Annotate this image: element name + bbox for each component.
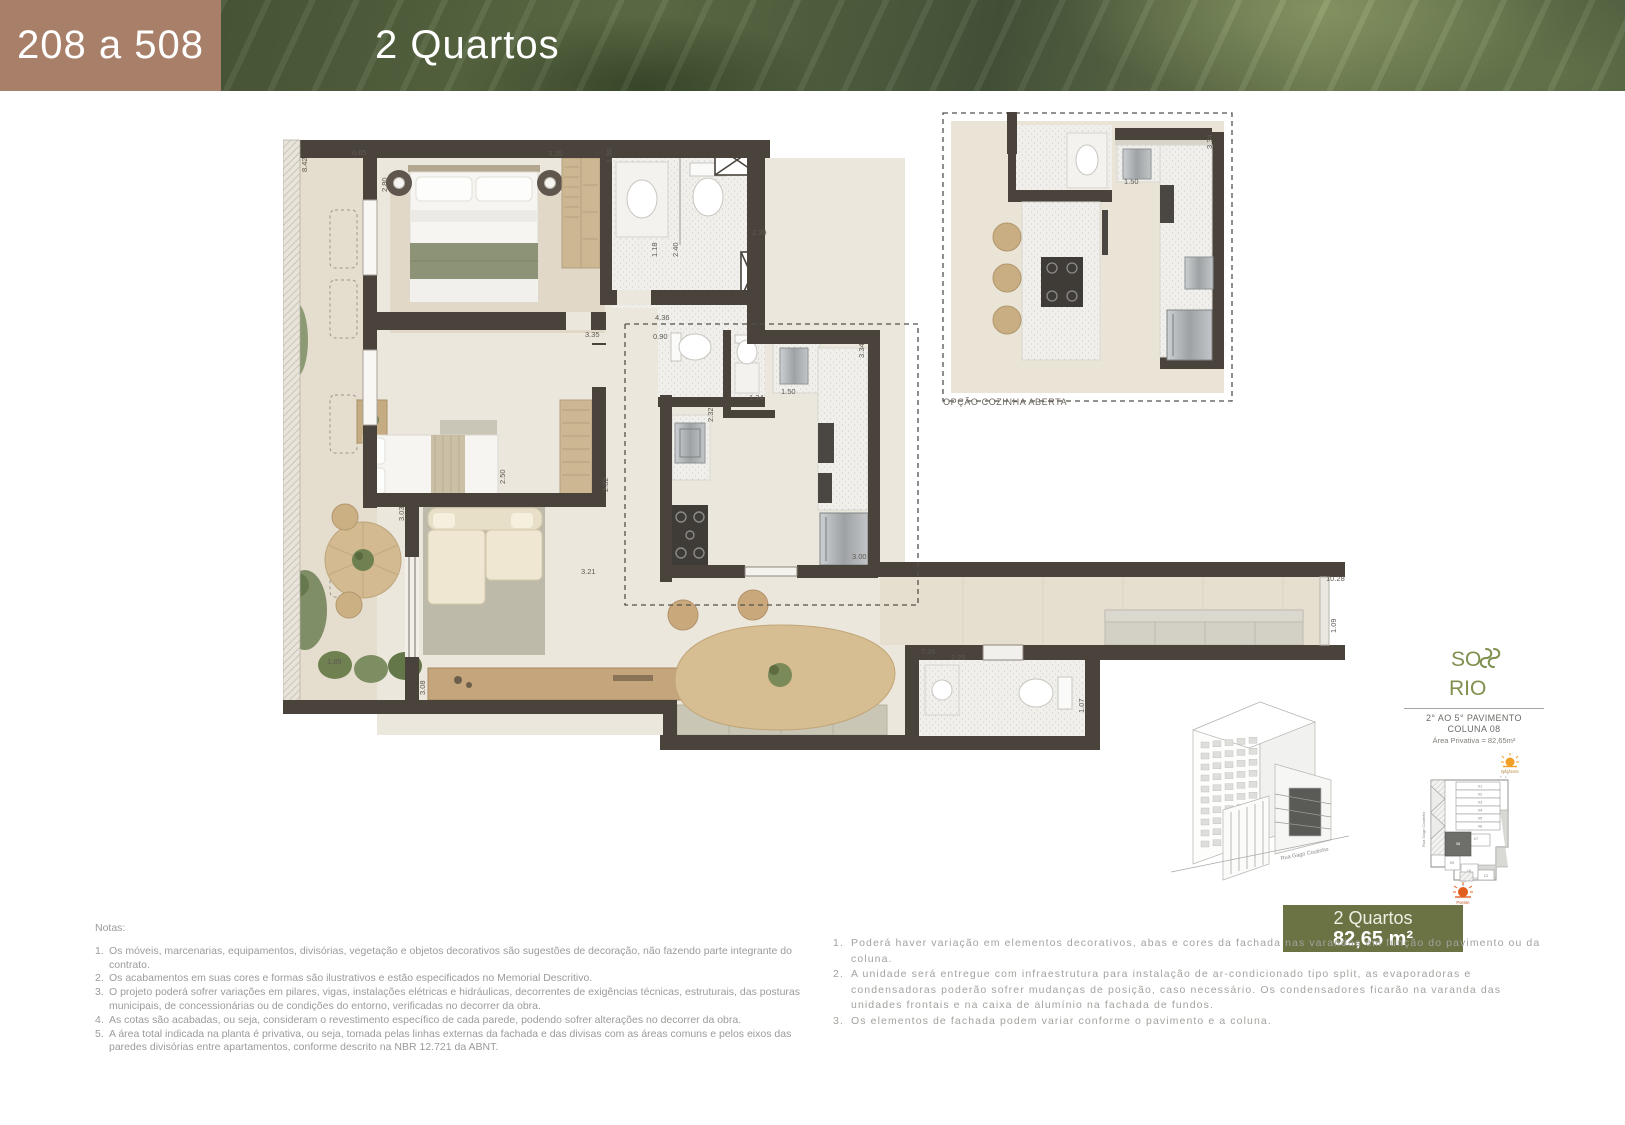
bottom-wall-dining bbox=[660, 735, 905, 750]
wardrobe bbox=[562, 158, 600, 268]
dimension-label: 2.82 bbox=[601, 477, 610, 492]
stool bbox=[993, 306, 1021, 334]
note-item: 1.Os móveis, marcenarias, equipamentos, … bbox=[95, 945, 801, 973]
notes-left: Notas: 1.Os móveis, marcenarias, equipam… bbox=[95, 922, 801, 1055]
notes-left-list: 1.Os móveis, marcenarias, equipamentos, … bbox=[95, 945, 801, 1055]
unit-label: 01 bbox=[1478, 784, 1483, 789]
door-opening bbox=[617, 290, 651, 305]
dimension-label: 7.26 bbox=[921, 647, 936, 656]
toilet-bowl bbox=[693, 178, 723, 216]
leaf-banner: 2 Quartos bbox=[221, 0, 1625, 91]
dimension-label: 3.34 bbox=[1205, 134, 1214, 149]
unit-label: 03 bbox=[1478, 800, 1483, 805]
building-illustration: Rua Gago Coutinho bbox=[1163, 668, 1358, 888]
dimension-label: 0.65 bbox=[352, 148, 367, 157]
inset-appliance bbox=[1160, 185, 1174, 223]
note-item: 2.Os acabamentos em suas cores e formas … bbox=[95, 972, 801, 986]
throw-blanket bbox=[431, 435, 465, 497]
dimension-label: 1.07 bbox=[1077, 698, 1086, 713]
appliance bbox=[818, 473, 832, 503]
sun-set-icon bbox=[1453, 882, 1473, 897]
wardrobe bbox=[560, 400, 592, 495]
historic-facade bbox=[1223, 796, 1269, 880]
dimension-label: 10.28 bbox=[1326, 574, 1345, 583]
dimension-label: 1.50 bbox=[1124, 177, 1139, 186]
solrio-logo: SO RIO bbox=[1443, 645, 1505, 703]
dimension-label: 3.21 bbox=[581, 567, 596, 576]
service-tank bbox=[780, 348, 808, 384]
sink-basin bbox=[627, 180, 657, 218]
toilet-bowl bbox=[1019, 679, 1053, 707]
brand-block: SO RIO 2° AO 5° PAVIMENTO COLUNA 08 Área… bbox=[1398, 645, 1550, 745]
keyplan: 0102030405060708091012 Nascente Poente R… bbox=[1416, 752, 1576, 907]
svg-text:SO: SO bbox=[1451, 648, 1481, 671]
private-area-label: Área Privativa = 82,65m² bbox=[1398, 736, 1550, 745]
divider bbox=[1404, 708, 1544, 709]
sliding-door bbox=[405, 557, 419, 657]
inset-fridge bbox=[1167, 310, 1212, 360]
page-header: 208 a 508 2 Quartos bbox=[0, 0, 1625, 91]
stool bbox=[993, 223, 1021, 251]
unit-label: 10 bbox=[1467, 868, 1472, 873]
pillow bbox=[476, 177, 532, 201]
cushion bbox=[511, 513, 533, 528]
column-label: COLUNA 08 bbox=[1398, 724, 1550, 734]
wing-recess bbox=[1289, 788, 1321, 836]
sun-rise-label: Nascente bbox=[1501, 769, 1519, 774]
unit-label: 02 bbox=[1478, 792, 1483, 797]
toilet-tank bbox=[1058, 677, 1072, 709]
dimension-label: 3.00 bbox=[852, 552, 867, 561]
dimension-label: 2.80 bbox=[380, 177, 389, 192]
notes-right-list: 1.Poderá haver variação em elementos dec… bbox=[833, 936, 1545, 1029]
sink-basin bbox=[932, 680, 952, 700]
dimension-label: 1.18 bbox=[650, 242, 659, 257]
stool bbox=[336, 592, 362, 618]
note-item: 1.Poderá haver variação em elementos dec… bbox=[833, 936, 1545, 967]
unit-label: 07 bbox=[1474, 836, 1479, 841]
pillow bbox=[416, 177, 472, 201]
lavabo-door bbox=[983, 645, 1023, 660]
dimension-label: 4.36 bbox=[655, 313, 670, 322]
backsplash bbox=[1115, 140, 1210, 145]
window bbox=[363, 350, 377, 425]
appliance bbox=[818, 423, 834, 463]
elevator bbox=[1460, 872, 1473, 881]
dimension-label: 1.30 bbox=[605, 148, 614, 163]
lamp bbox=[394, 178, 405, 189]
stool bbox=[332, 504, 358, 530]
lavabo-left-wall bbox=[905, 645, 919, 750]
kitchen-left-wall bbox=[660, 395, 672, 582]
page-title: 2 Quartos bbox=[375, 23, 560, 68]
dimension-label: 2.40 bbox=[671, 242, 680, 257]
sun-rise-icon bbox=[1501, 753, 1519, 767]
terrace-bench bbox=[1105, 610, 1303, 645]
lamp bbox=[545, 178, 556, 189]
notes-title: Notas: bbox=[95, 922, 801, 936]
unit-label: 12 bbox=[1484, 873, 1489, 878]
wc-wall bbox=[723, 410, 775, 418]
keyplan-outline bbox=[1431, 780, 1508, 881]
dimension-label: 8.42 bbox=[300, 157, 309, 172]
inset-sink-2 bbox=[1185, 257, 1213, 289]
note-item: 2.A unidade será entregue com infraestru… bbox=[833, 967, 1545, 1014]
dimension-label: 2.39 bbox=[752, 228, 767, 237]
door-opening bbox=[566, 312, 591, 330]
dimension-label: 1.34 bbox=[749, 393, 764, 402]
unit-range-label: 208 a 508 bbox=[17, 23, 204, 68]
note-item: 4.As cotas são acabadas, ou seja, consid… bbox=[95, 1014, 801, 1028]
kitchen-door-threshold bbox=[745, 567, 797, 576]
open-kitchen-inset: OPÇÃO COZINHA ABERTA bbox=[943, 112, 1232, 407]
dimension-label: 2.32 bbox=[706, 407, 715, 422]
unit-label: 09 bbox=[1450, 860, 1455, 865]
terrace-railing bbox=[1320, 577, 1329, 645]
dimension-label: 2.50 bbox=[498, 469, 507, 484]
dimension-label: 1.50 bbox=[781, 387, 796, 396]
keyplan-street-label: Rua Gago Coutinho bbox=[1421, 811, 1426, 847]
dimension-label: 0.90 bbox=[653, 332, 668, 341]
lavabo-bottom-wall bbox=[905, 736, 1100, 750]
inset-sink bbox=[1123, 149, 1151, 179]
dimension-label: 2.25 bbox=[951, 653, 966, 662]
svg-text:RIO: RIO bbox=[1449, 677, 1486, 700]
stove bbox=[672, 505, 708, 565]
note-item: 3.Os elementos de fachada podem variar c… bbox=[833, 1014, 1545, 1030]
note-item: 5.A área total indicada na planta é priv… bbox=[95, 1028, 801, 1056]
dimension-label: 3.34 bbox=[857, 343, 866, 358]
master-bedroom bbox=[386, 158, 605, 333]
window bbox=[363, 200, 377, 275]
floorplan: OPÇÃO COZINHA ABERTA 8.420.652.803.351.3… bbox=[283, 105, 1348, 750]
pavement-label: 2° AO 5° PAVIMENTO bbox=[1398, 713, 1550, 723]
unit-label: 06 bbox=[1478, 824, 1483, 829]
terrace-arm-top-wall bbox=[880, 562, 1345, 577]
dimension-label: 3.35 bbox=[548, 149, 563, 158]
unit-label: 05 bbox=[1478, 816, 1483, 821]
balcony-outer-wall bbox=[283, 140, 300, 705]
wc-sink bbox=[735, 363, 759, 393]
unit-label: 04 bbox=[1478, 808, 1483, 813]
headboard bbox=[408, 165, 540, 172]
dimension-label: 3.08 bbox=[418, 680, 427, 695]
toilet-bowl bbox=[679, 334, 711, 360]
door-opening bbox=[592, 345, 606, 387]
stool bbox=[993, 264, 1021, 292]
inset-island bbox=[1022, 202, 1108, 360]
cushion bbox=[433, 513, 455, 528]
bottom-wall-left bbox=[283, 700, 675, 714]
dimension-label: 1.09 bbox=[1329, 618, 1338, 633]
terrace-arm-bottom-wall bbox=[905, 645, 1345, 660]
note-item: 3.O projeto poderá sofrer variações em p… bbox=[95, 986, 801, 1014]
dimension-label: 3.03 bbox=[397, 506, 406, 521]
dimension-label: 1.85 bbox=[327, 657, 342, 666]
dimension-label: 3.35 bbox=[585, 330, 600, 339]
badge-type: 2 Quartos bbox=[1283, 908, 1463, 928]
inset-caption: OPÇÃO COZINHA ABERTA bbox=[943, 397, 1067, 407]
notes-right: 1.Poderá haver variação em elementos dec… bbox=[833, 936, 1545, 1029]
unit-range-tab: 208 a 508 bbox=[0, 0, 221, 91]
unit-label: 08 bbox=[1456, 841, 1461, 846]
